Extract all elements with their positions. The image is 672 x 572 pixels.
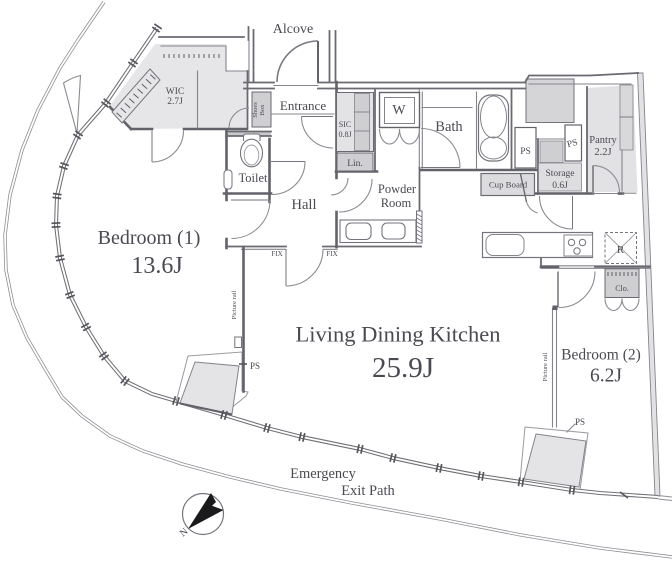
svg-text:25.9J: 25.9J (372, 352, 434, 384)
svg-text:W: W (392, 103, 406, 118)
svg-text:Entrance: Entrance (280, 98, 326, 113)
svg-text:FIX: FIX (271, 250, 282, 258)
svg-text:Alcove: Alcove (273, 22, 313, 37)
svg-text:Hall: Hall (292, 197, 317, 213)
svg-text:13.6J: 13.6J (131, 253, 182, 279)
svg-text:Shoes: Shoes (252, 102, 259, 118)
svg-text:0.8J: 0.8J (338, 130, 351, 139)
svg-text:Toilet: Toilet (239, 171, 269, 185)
svg-text:2.7J: 2.7J (167, 97, 183, 107)
svg-text:FIX: FIX (326, 250, 337, 258)
svg-text:6.2J: 6.2J (590, 366, 622, 387)
svg-text:Room: Room (381, 196, 412, 210)
svg-text:Exit Path: Exit Path (341, 483, 395, 499)
svg-text:R: R (617, 244, 625, 256)
svg-text:PS: PS (250, 361, 260, 371)
svg-text:Cup Board: Cup Board (489, 180, 528, 190)
svg-text:Living Dining Kitchen: Living Dining Kitchen (296, 322, 501, 347)
svg-text:Pantry: Pantry (589, 135, 617, 146)
svg-text:Bedroom (1): Bedroom (1) (98, 227, 201, 249)
svg-text:WIC: WIC (166, 87, 184, 97)
svg-text:Emergency: Emergency (290, 466, 357, 482)
svg-text:Picture rail: Picture rail (542, 352, 549, 381)
svg-text:Storage: Storage (545, 169, 574, 179)
svg-text:2.2J: 2.2J (594, 147, 611, 158)
svg-text:PS: PS (575, 417, 585, 427)
svg-text:SIC: SIC (339, 120, 351, 129)
svg-text:Powder: Powder (378, 182, 417, 196)
svg-text:Bath: Bath (435, 119, 463, 135)
svg-text:Box: Box (259, 104, 266, 116)
svg-text:Clo.: Clo. (615, 284, 629, 293)
svg-text:Picture rail: Picture rail (231, 290, 238, 319)
svg-text:Bedroom (2): Bedroom (2) (561, 347, 641, 364)
svg-text:0.6J: 0.6J (552, 181, 568, 191)
svg-text:PS: PS (520, 147, 531, 157)
svg-text:Lin.: Lin. (347, 159, 363, 169)
